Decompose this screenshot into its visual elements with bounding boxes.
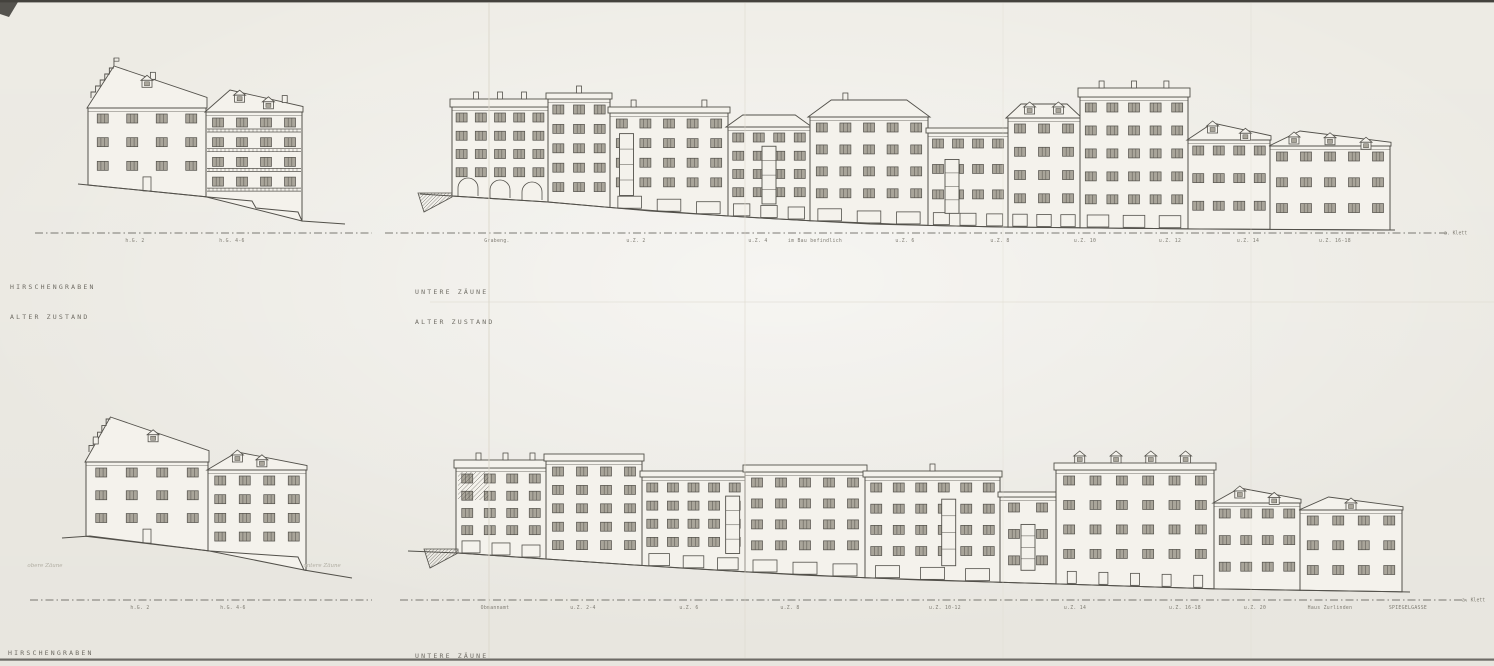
- building: [205, 90, 303, 221]
- tick-label: SPIEGELGASSE: [1389, 605, 1427, 611]
- tick-label: u.Z. 6: [895, 238, 914, 244]
- tick-label: u.Z. 14: [1064, 605, 1086, 611]
- tick-label: u.Z. 10: [1074, 238, 1096, 244]
- tick-label: u.Z. 12: [1159, 238, 1181, 244]
- tick-label: im Bau befindlich: [788, 238, 842, 244]
- tick-label: u.Z. 8: [780, 605, 799, 611]
- building: [87, 58, 207, 197]
- building: [85, 417, 209, 551]
- street-name-top-right: UNTERE ZÄUNE: [415, 287, 494, 297]
- tick-label: Haus Zurlinden: [1308, 605, 1353, 611]
- tick-label: u.Z. 16-18: [1169, 605, 1201, 611]
- baseline-endmark: a. Klett: [1444, 231, 1467, 237]
- tick-label: h.G. 2: [130, 605, 149, 611]
- building: [546, 86, 612, 207]
- label-block-top-right: UNTERE ZÄUNE ALTER ZUSTAND: [415, 267, 494, 347]
- building: [608, 100, 730, 216]
- elevation-top-right: Grabeng.u.Z. 2u.Z. 4im Bau befindlichu.Z…: [385, 81, 1467, 244]
- building: [1213, 486, 1301, 590]
- building: [743, 465, 867, 578]
- tick-label: u.Z. 6: [679, 605, 698, 611]
- tick-label: Obmannamt: [481, 605, 510, 611]
- building: [1269, 131, 1391, 230]
- scan-edge-top: [0, 0, 1494, 2]
- tick-label: u.Z. 4: [748, 238, 767, 244]
- tick-label: u.Z. 14: [1237, 238, 1259, 244]
- tick-label: u.Z. 2: [626, 238, 645, 244]
- state-label-top-left: ALTER ZUSTAND: [10, 312, 96, 322]
- state-label-top-right: ALTER ZUSTAND: [415, 317, 494, 327]
- building: [998, 492, 1058, 584]
- tick-label: u.Z. 16-18: [1319, 238, 1351, 244]
- tick-label: u.Z. 2-4: [570, 605, 596, 611]
- baseline-endmark: a. Klett: [1462, 598, 1485, 604]
- tick-label: h.G. 2: [125, 238, 144, 244]
- street-name-bottom-right: UNTERE ZÄUNE: [415, 651, 494, 661]
- building: [808, 93, 930, 225]
- building: [640, 471, 747, 572]
- building: [544, 454, 644, 565]
- street-name-top-left: HIRSCHENGRABEN: [10, 282, 96, 292]
- tick-label: u.Z. 10-12: [929, 605, 961, 611]
- pencil-annotation: obere Zäune: [27, 563, 63, 569]
- label-block-bottom-right: UNTERE ZÄUNE NEUER ZUSTAND: [415, 631, 494, 666]
- building: [1006, 102, 1082, 228]
- tick-label: u.Z. 20: [1244, 605, 1266, 611]
- building: [454, 453, 548, 559]
- scanned-drawing-sheet: h.G. 2h.G. 4-6Grabeng.u.Z. 2u.Z. 4im Bau…: [0, 0, 1494, 666]
- pencil-annotation: untere Zäune: [303, 563, 341, 569]
- tick-label: h.G. 4-6: [219, 238, 245, 244]
- elevation-top-left: h.G. 2h.G. 4-6: [35, 58, 372, 244]
- scan-corner-mark: [0, 2, 18, 17]
- building: [926, 128, 1010, 227]
- building: [450, 92, 550, 202]
- label-block-top-left: HIRSCHENGRABEN ALTER ZUSTAND: [10, 262, 96, 342]
- scan-edge-bottom: [0, 659, 1494, 661]
- building: [1187, 121, 1271, 229]
- label-block-bottom-left: HIRSCHENGRABEN NEUER ZUSTAND: [8, 628, 94, 666]
- elevation-bottom-left: h.G. 2h.G. 4-6obere Zäuneuntere Zäune: [27, 417, 372, 611]
- tick-label: u.Z. 8: [990, 238, 1009, 244]
- building: [1054, 451, 1216, 589]
- tick-label: h.G. 4-6: [220, 605, 246, 611]
- tick-label: Grabeng.: [484, 238, 510, 244]
- building: [1299, 497, 1403, 592]
- building: [1078, 81, 1190, 229]
- building: [726, 115, 812, 221]
- building: [863, 464, 1002, 582]
- elevation-drawing-canvas: h.G. 2h.G. 4-6Grabeng.u.Z. 2u.Z. 4im Bau…: [0, 0, 1494, 666]
- street-name-bottom-left: HIRSCHENGRABEN: [8, 648, 94, 658]
- elevation-bottom-right: Obmannamtu.Z. 2-4u.Z. 6u.Z. 8u.Z. 10-12u…: [400, 451, 1485, 611]
